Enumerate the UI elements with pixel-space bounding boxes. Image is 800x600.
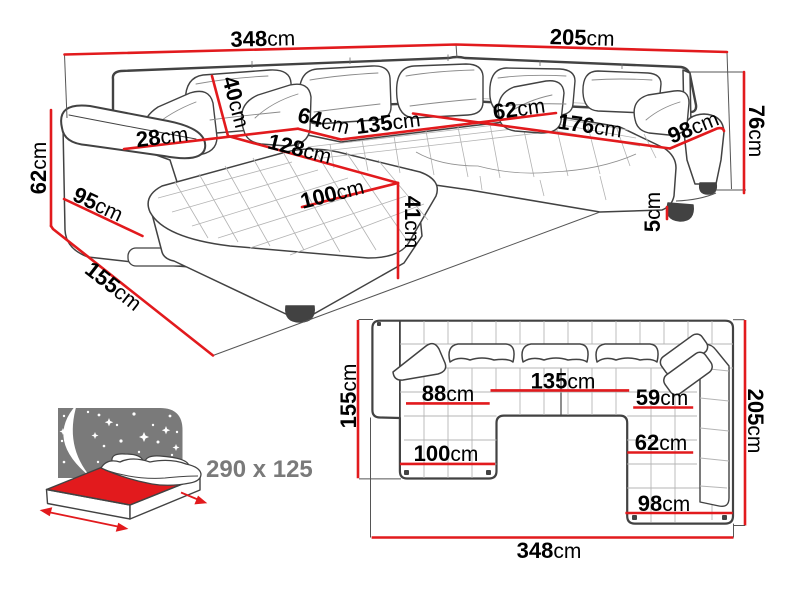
svg-text:88cm: 88cm: [422, 381, 474, 406]
svg-text:155cm: 155cm: [336, 364, 361, 429]
svg-text:5cm: 5cm: [640, 192, 665, 232]
svg-text:59cm: 59cm: [636, 385, 688, 410]
svg-text:76cm: 76cm: [744, 105, 769, 157]
svg-text:205cm: 205cm: [743, 389, 768, 454]
svg-text:98cm: 98cm: [638, 491, 690, 516]
svg-text:41cm: 41cm: [400, 196, 425, 248]
svg-text:290 x 125: 290 x 125: [206, 456, 313, 483]
svg-text:348cm: 348cm: [517, 538, 582, 563]
svg-text:100cm: 100cm: [414, 441, 479, 466]
svg-text:62cm: 62cm: [26, 142, 51, 194]
svg-text:348cm: 348cm: [230, 25, 295, 52]
svg-text:205cm: 205cm: [550, 24, 615, 51]
svg-text:62cm: 62cm: [635, 430, 687, 455]
svg-text:135cm: 135cm: [531, 369, 596, 394]
